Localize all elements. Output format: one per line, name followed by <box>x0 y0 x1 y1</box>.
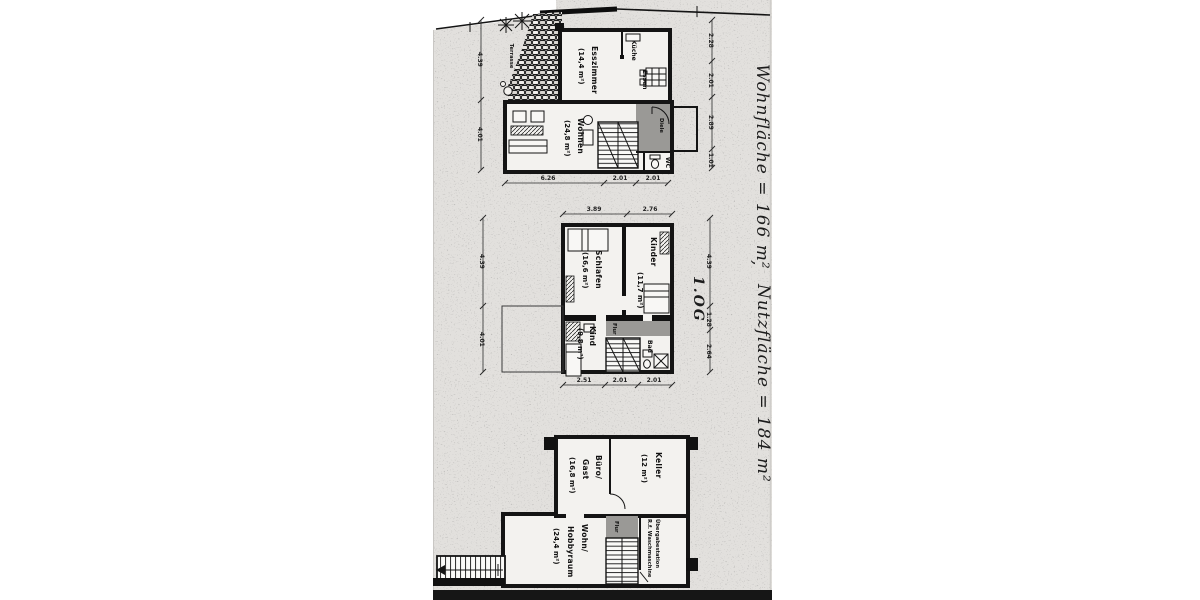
chimney-block <box>555 23 564 31</box>
svg-text:Kind: Kind <box>588 326 597 346</box>
floorplan-scan: Terrasse Esszimmer (14,4 m²) Küche Essen <box>0 0 1200 600</box>
room-label-essen: Essen <box>641 70 648 90</box>
plant-icon <box>498 17 514 33</box>
dim-label: 2.89 <box>707 115 714 130</box>
dim-label: 1.01 <box>707 153 714 168</box>
retaining-wall <box>433 578 505 586</box>
svg-text:(11,7 m²): (11,7 m²) <box>636 272 644 308</box>
svg-text:Keller: Keller <box>654 452 663 479</box>
svg-text:(24,4 m²): (24,4 m²) <box>552 528 560 564</box>
svg-text:R.f. Waschmaschine: R.f. Waschmaschine <box>646 519 652 578</box>
floorplan-drawing: Terrasse Esszimmer (14,4 m²) Küche Essen <box>0 0 1200 600</box>
dim-label: 2.76 <box>643 206 658 213</box>
dim-label: 4.39 <box>476 52 483 67</box>
annotation-wohnflaeche: Wohnfläche = 166 m² <box>752 64 772 270</box>
eg-upper-walls <box>560 30 670 102</box>
ug-staircase-icon <box>606 538 638 584</box>
toilet-icon <box>644 360 651 368</box>
svg-text:Wohnen: Wohnen <box>576 118 585 154</box>
bed-icon <box>644 284 669 313</box>
svg-text:Gast: Gast <box>581 459 590 480</box>
wall-stub <box>544 437 556 450</box>
room-label-terrasse: Terrasse <box>508 44 514 69</box>
planter-icon <box>504 87 512 95</box>
scan-bottom-edge <box>433 590 772 600</box>
dim-label: 1.28 <box>705 312 712 327</box>
dim-label: 4.39 <box>478 254 485 269</box>
wall-stub <box>686 558 698 571</box>
dim-label: 2.01 <box>646 175 661 182</box>
svg-text:(16,8 m²): (16,8 m²) <box>568 457 576 493</box>
room-label-flur: Flur <box>611 323 617 335</box>
floor-label-1og: 1.OG <box>690 276 706 323</box>
room-label-kueche: Küche <box>630 40 637 61</box>
dim-label: 4.01 <box>476 127 483 142</box>
dim-label: 2.01 <box>647 377 662 384</box>
svg-text:(16,6 m²): (16,6 m²) <box>581 252 589 288</box>
planter-icon <box>501 82 506 87</box>
svg-text:(24,8 m²): (24,8 m²) <box>563 120 571 156</box>
wall-stub <box>686 437 698 450</box>
room-label-bad: Bad <box>646 340 653 353</box>
ug-hall-area <box>606 516 638 538</box>
annotation-separator: , <box>748 260 768 266</box>
wardrobe-icon <box>566 276 574 302</box>
room-label-wc: WC <box>664 157 671 169</box>
dim-label: 2.51 <box>577 377 592 384</box>
svg-text:(12 m²): (12 m²) <box>640 454 648 483</box>
svg-text:Büro/: Büro/ <box>594 455 603 479</box>
svg-text:Kinder: Kinder <box>649 237 658 267</box>
dim-label: 4.39 <box>705 254 712 269</box>
svg-text:(9,8 m²): (9,8 m²) <box>576 328 584 360</box>
svg-text:Hobbyraum: Hobbyraum <box>566 526 575 578</box>
bed-icon <box>568 229 608 251</box>
svg-text:Esszimmer: Esszimmer <box>590 46 599 94</box>
plant-icon <box>513 12 531 30</box>
eg-staircase-icon <box>598 122 638 168</box>
dim-label: 3.89 <box>587 206 602 213</box>
dim-label: 6.26 <box>541 175 556 182</box>
room-label-ug-flur: Flur <box>613 521 619 533</box>
dim-label: 2.01 <box>613 175 628 182</box>
room-label-diele: Diele <box>658 118 664 133</box>
door-opening <box>566 510 584 518</box>
dim-label: 4.01 <box>478 332 485 347</box>
toilet-icon <box>651 160 658 169</box>
dim-label: 2.01 <box>613 377 628 384</box>
dim-label: 2.01 <box>707 73 714 88</box>
svg-text:(14,4 m²): (14,4 m²) <box>577 48 585 84</box>
svg-text:Übergabestation: Übergabestation <box>654 519 661 568</box>
toilet-tank-icon <box>650 155 660 159</box>
external-staircase-icon <box>433 556 505 586</box>
dim-label: 2.28 <box>707 33 714 48</box>
svg-text:Schlafen: Schlafen <box>594 250 603 289</box>
shower-icon <box>654 354 668 368</box>
og-staircase-icon <box>606 338 640 372</box>
wardrobe-icon <box>660 232 669 254</box>
dim-label: 2.64 <box>705 344 712 359</box>
svg-text:Wohn/: Wohn/ <box>580 524 589 552</box>
annotation-nutzflaeche: Nutzfläche = 184 m² <box>753 283 773 483</box>
